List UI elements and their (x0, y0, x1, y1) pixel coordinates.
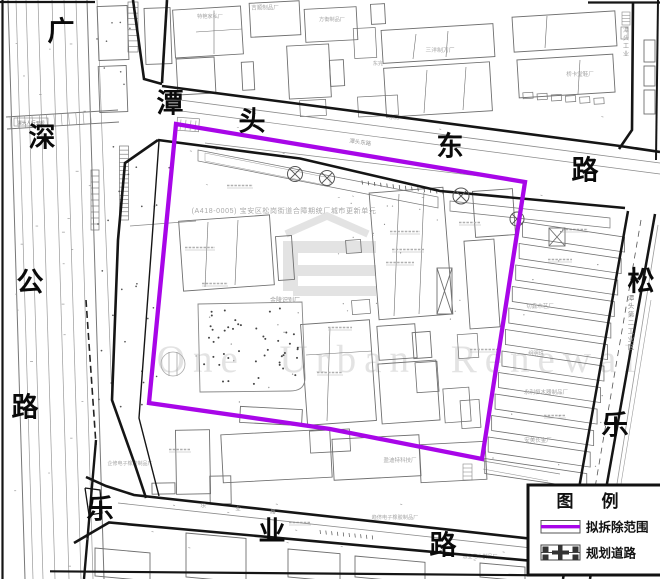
svg-text:特艳家私厂: 特艳家私厂 (197, 12, 223, 20)
svg-text:二: 二 (628, 320, 635, 327)
svg-text:三洋制刀厂: 三洋制刀厂 (426, 46, 455, 54)
svg-text:区: 区 (628, 343, 635, 351)
svg-text:松: 松 (628, 267, 655, 297)
svg-text:工: 工 (628, 328, 635, 335)
svg-text:企修电子橡胶制品厂: 企修电子橡胶制品厂 (107, 460, 152, 467)
svg-text:切鑫木艺厂: 切鑫木艺厂 (526, 302, 554, 310)
svg-text:工: 工 (623, 43, 629, 50)
svg-text:安美长金厂: 安美长金厂 (524, 436, 552, 444)
svg-text:乐: 乐 (602, 411, 629, 441)
svg-text:永利恒木器制品厂: 永利恒木器制品厂 (524, 388, 569, 396)
svg-text:头: 头 (239, 107, 266, 137)
svg-text:组明珠: 组明珠 (528, 349, 544, 357)
svg-text:盈迪特科技厂: 盈迪特科技厂 (383, 456, 417, 464)
svg-text:业: 业 (628, 334, 635, 343)
svg-text:方衡制品厂: 方衡制品厂 (319, 15, 345, 23)
svg-text:业: 业 (623, 50, 629, 58)
svg-text:广: 广 (48, 17, 75, 47)
svg-text:公: 公 (17, 268, 44, 298)
svg-text:拟拆除范围: 拟拆除范围 (586, 520, 649, 535)
svg-text:深: 深 (29, 123, 56, 153)
svg-text:东完: 东完 (373, 59, 383, 67)
svg-text:路: 路 (430, 530, 458, 561)
svg-text:头: 头 (623, 34, 629, 42)
svg-text:例: 例 (602, 491, 619, 511)
svg-text:图: 图 (557, 492, 574, 511)
svg-text:One Urban Renewal: One Urban Renewal (157, 338, 643, 381)
svg-text:趋侪电子橡胶制品厂: 趋侪电子橡胶制品厂 (372, 513, 419, 521)
svg-text:头: 头 (628, 301, 635, 310)
svg-text:路: 路 (12, 392, 40, 423)
svg-text:东: 东 (437, 131, 464, 162)
svg-text:(A418-0005) 宝安区松岗街道合障期统厂城市更新单: (A418-0005) 宝安区松岗街道合障期统厂城市更新单元 (192, 206, 377, 215)
svg-text:第: 第 (628, 309, 635, 318)
svg-text:金陵识别厂: 金陵识别厂 (270, 296, 300, 304)
svg-text:乐: 乐 (87, 495, 114, 525)
svg-text:潭: 潭 (623, 26, 629, 34)
svg-text:规划道路: 规划道路 (586, 546, 637, 561)
svg-text:路: 路 (572, 155, 600, 186)
svg-text:桥卡堂鞋厂: 桥卡堂鞋厂 (566, 70, 594, 78)
svg-text:潭: 潭 (157, 89, 184, 119)
svg-text:业: 业 (259, 517, 286, 547)
svg-text:吉顺制品厂: 吉顺制品厂 (251, 4, 279, 12)
